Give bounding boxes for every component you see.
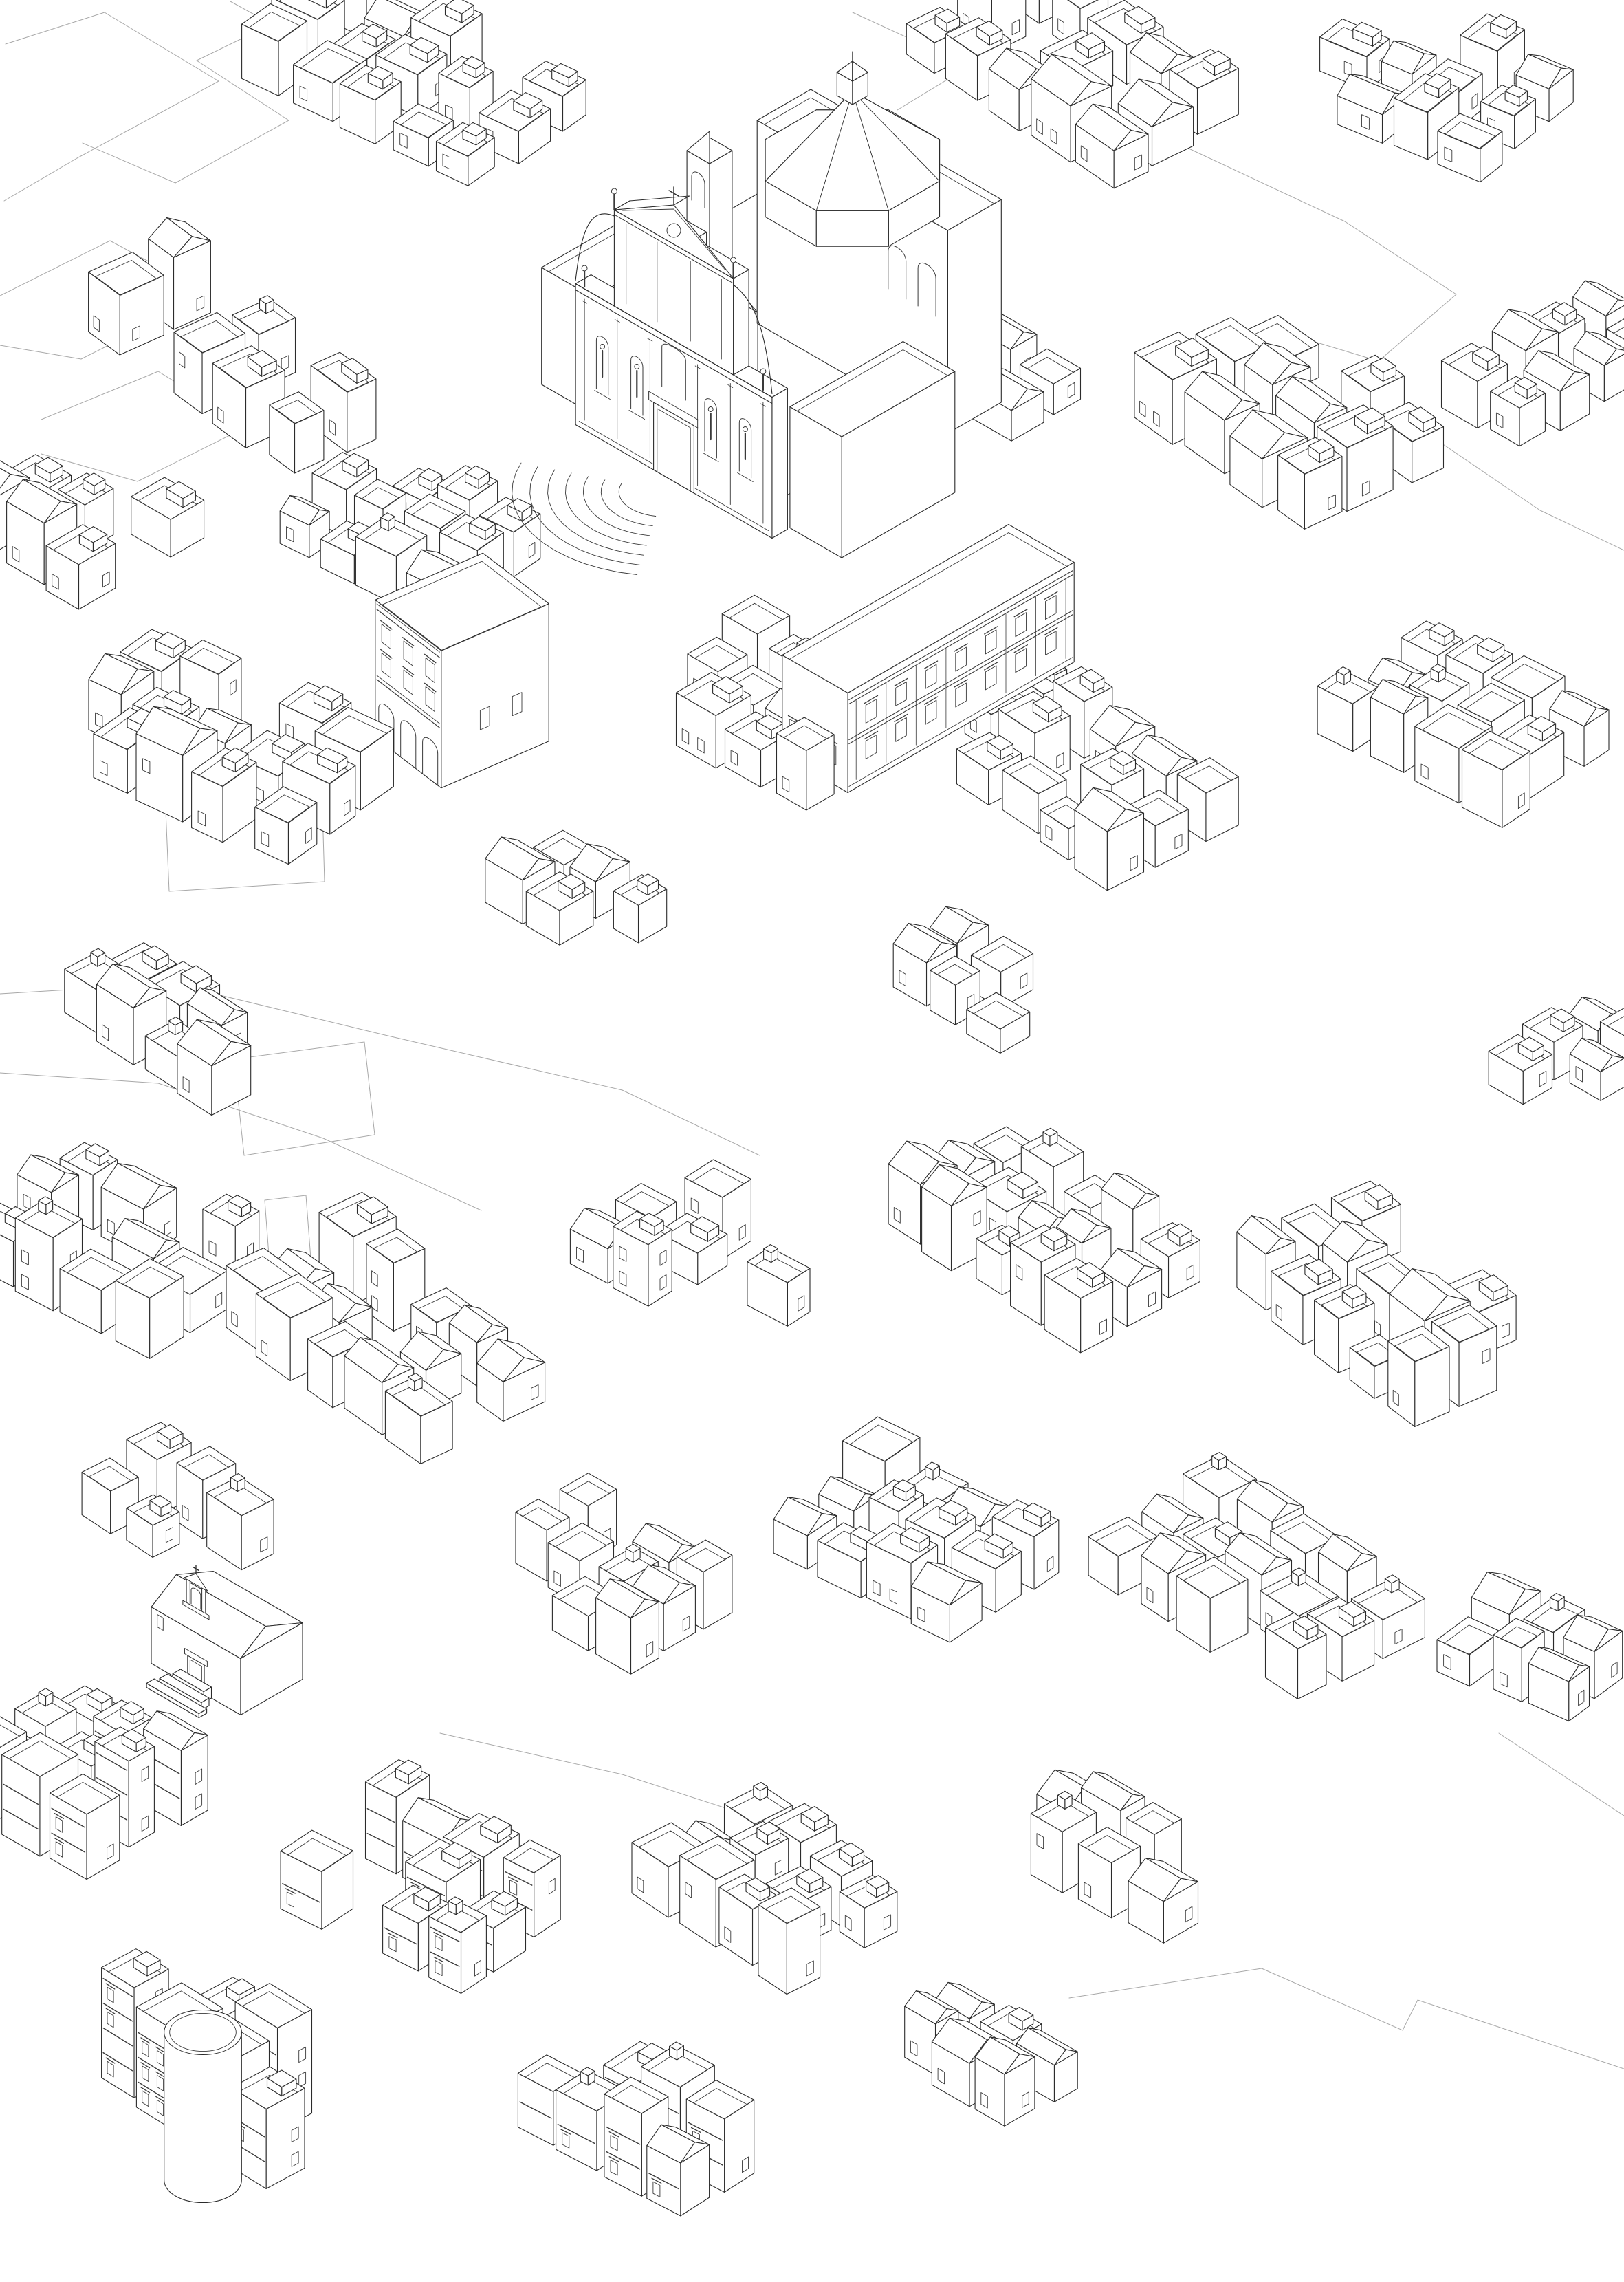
house	[747, 1245, 810, 1327]
house	[1266, 1613, 1327, 1699]
house	[131, 477, 204, 557]
house	[1437, 1617, 1501, 1686]
house	[1278, 437, 1342, 529]
house	[232, 2067, 305, 2188]
house	[613, 1211, 672, 1306]
house	[207, 1474, 274, 1570]
buildings-layer	[0, 0, 1624, 2216]
house	[1044, 1259, 1113, 1353]
house	[1489, 1034, 1552, 1105]
arcade-palazzo	[375, 553, 549, 788]
house	[1491, 376, 1546, 446]
house	[281, 1830, 353, 1929]
house	[777, 717, 835, 810]
house	[477, 1339, 545, 1422]
baroque-church	[542, 52, 1002, 558]
round-bastion-tower	[164, 2010, 242, 2202]
house	[50, 1774, 120, 1879]
house	[89, 252, 164, 355]
house	[1128, 1858, 1198, 1944]
city-drawing-svg	[0, 0, 1624, 2282]
house	[270, 392, 324, 473]
house	[429, 1897, 487, 1994]
house	[116, 1259, 184, 1358]
house	[1388, 1326, 1449, 1426]
house	[758, 1888, 820, 1995]
house	[340, 65, 401, 144]
chapel-with-bellcote	[146, 1565, 303, 1718]
page	[0, 0, 1624, 2282]
